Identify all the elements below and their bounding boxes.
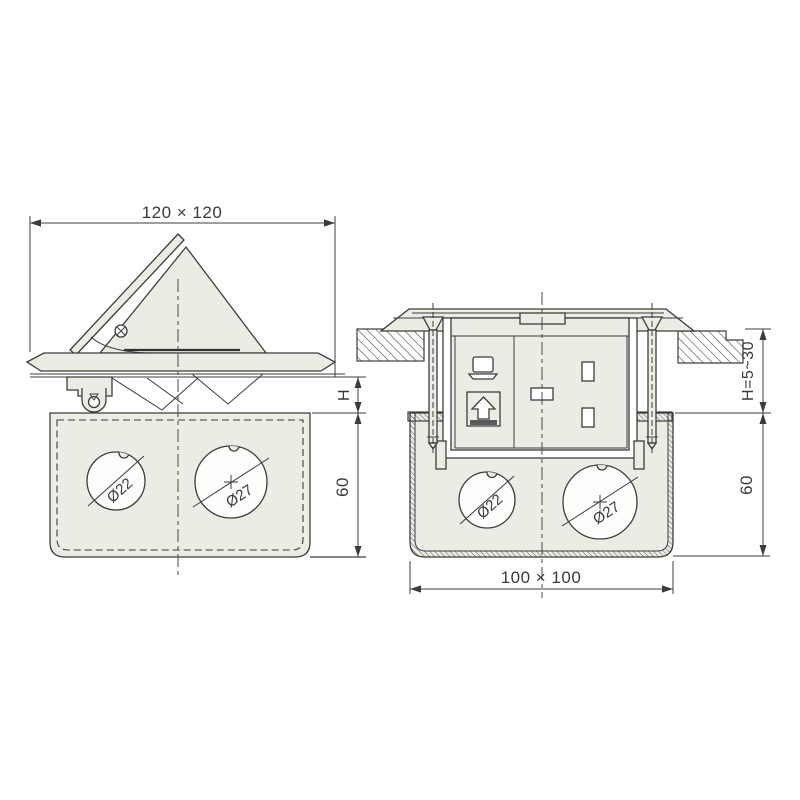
dim-open-cover-height: H (312, 377, 366, 413)
lid-screw-icon (115, 325, 127, 337)
data-port-icon (469, 357, 497, 379)
floor-section-left (357, 329, 424, 361)
clamp-claw-left (408, 412, 443, 421)
scissor-mechanism (67, 374, 263, 412)
dim-open-square-label: 120 × 120 (142, 203, 223, 222)
floor-socket-drawing: 120 × 120 Ø22 (0, 0, 800, 800)
cup-foot-right (634, 441, 644, 469)
dim-installed-square-label: 100 × 100 (501, 568, 582, 587)
technical-drawing-sheet: 120 × 120 Ø22 (0, 0, 800, 800)
dim-open-cover-height-label: H (336, 389, 353, 401)
dim-open-box-depth: 60 (333, 413, 362, 557)
dim-installed-square: 100 × 100 (410, 561, 673, 594)
view-installed: Ø22 Ø27 (357, 292, 771, 598)
dim-installed-box-depth: 60 (673, 413, 770, 556)
floor-section-right (678, 331, 743, 363)
dim-installed-box-depth-label: 60 (737, 475, 756, 495)
cup-foot-left (436, 441, 446, 469)
view-open: 120 × 120 Ø22 (27, 203, 366, 575)
cover-frame-plate (27, 353, 335, 371)
dim-installed-floor-height-label: H=5~30 (740, 341, 757, 401)
cup-interior (451, 318, 629, 450)
dim-open-box-depth-label: 60 (333, 477, 352, 497)
lift-arrow-icon (467, 392, 500, 426)
